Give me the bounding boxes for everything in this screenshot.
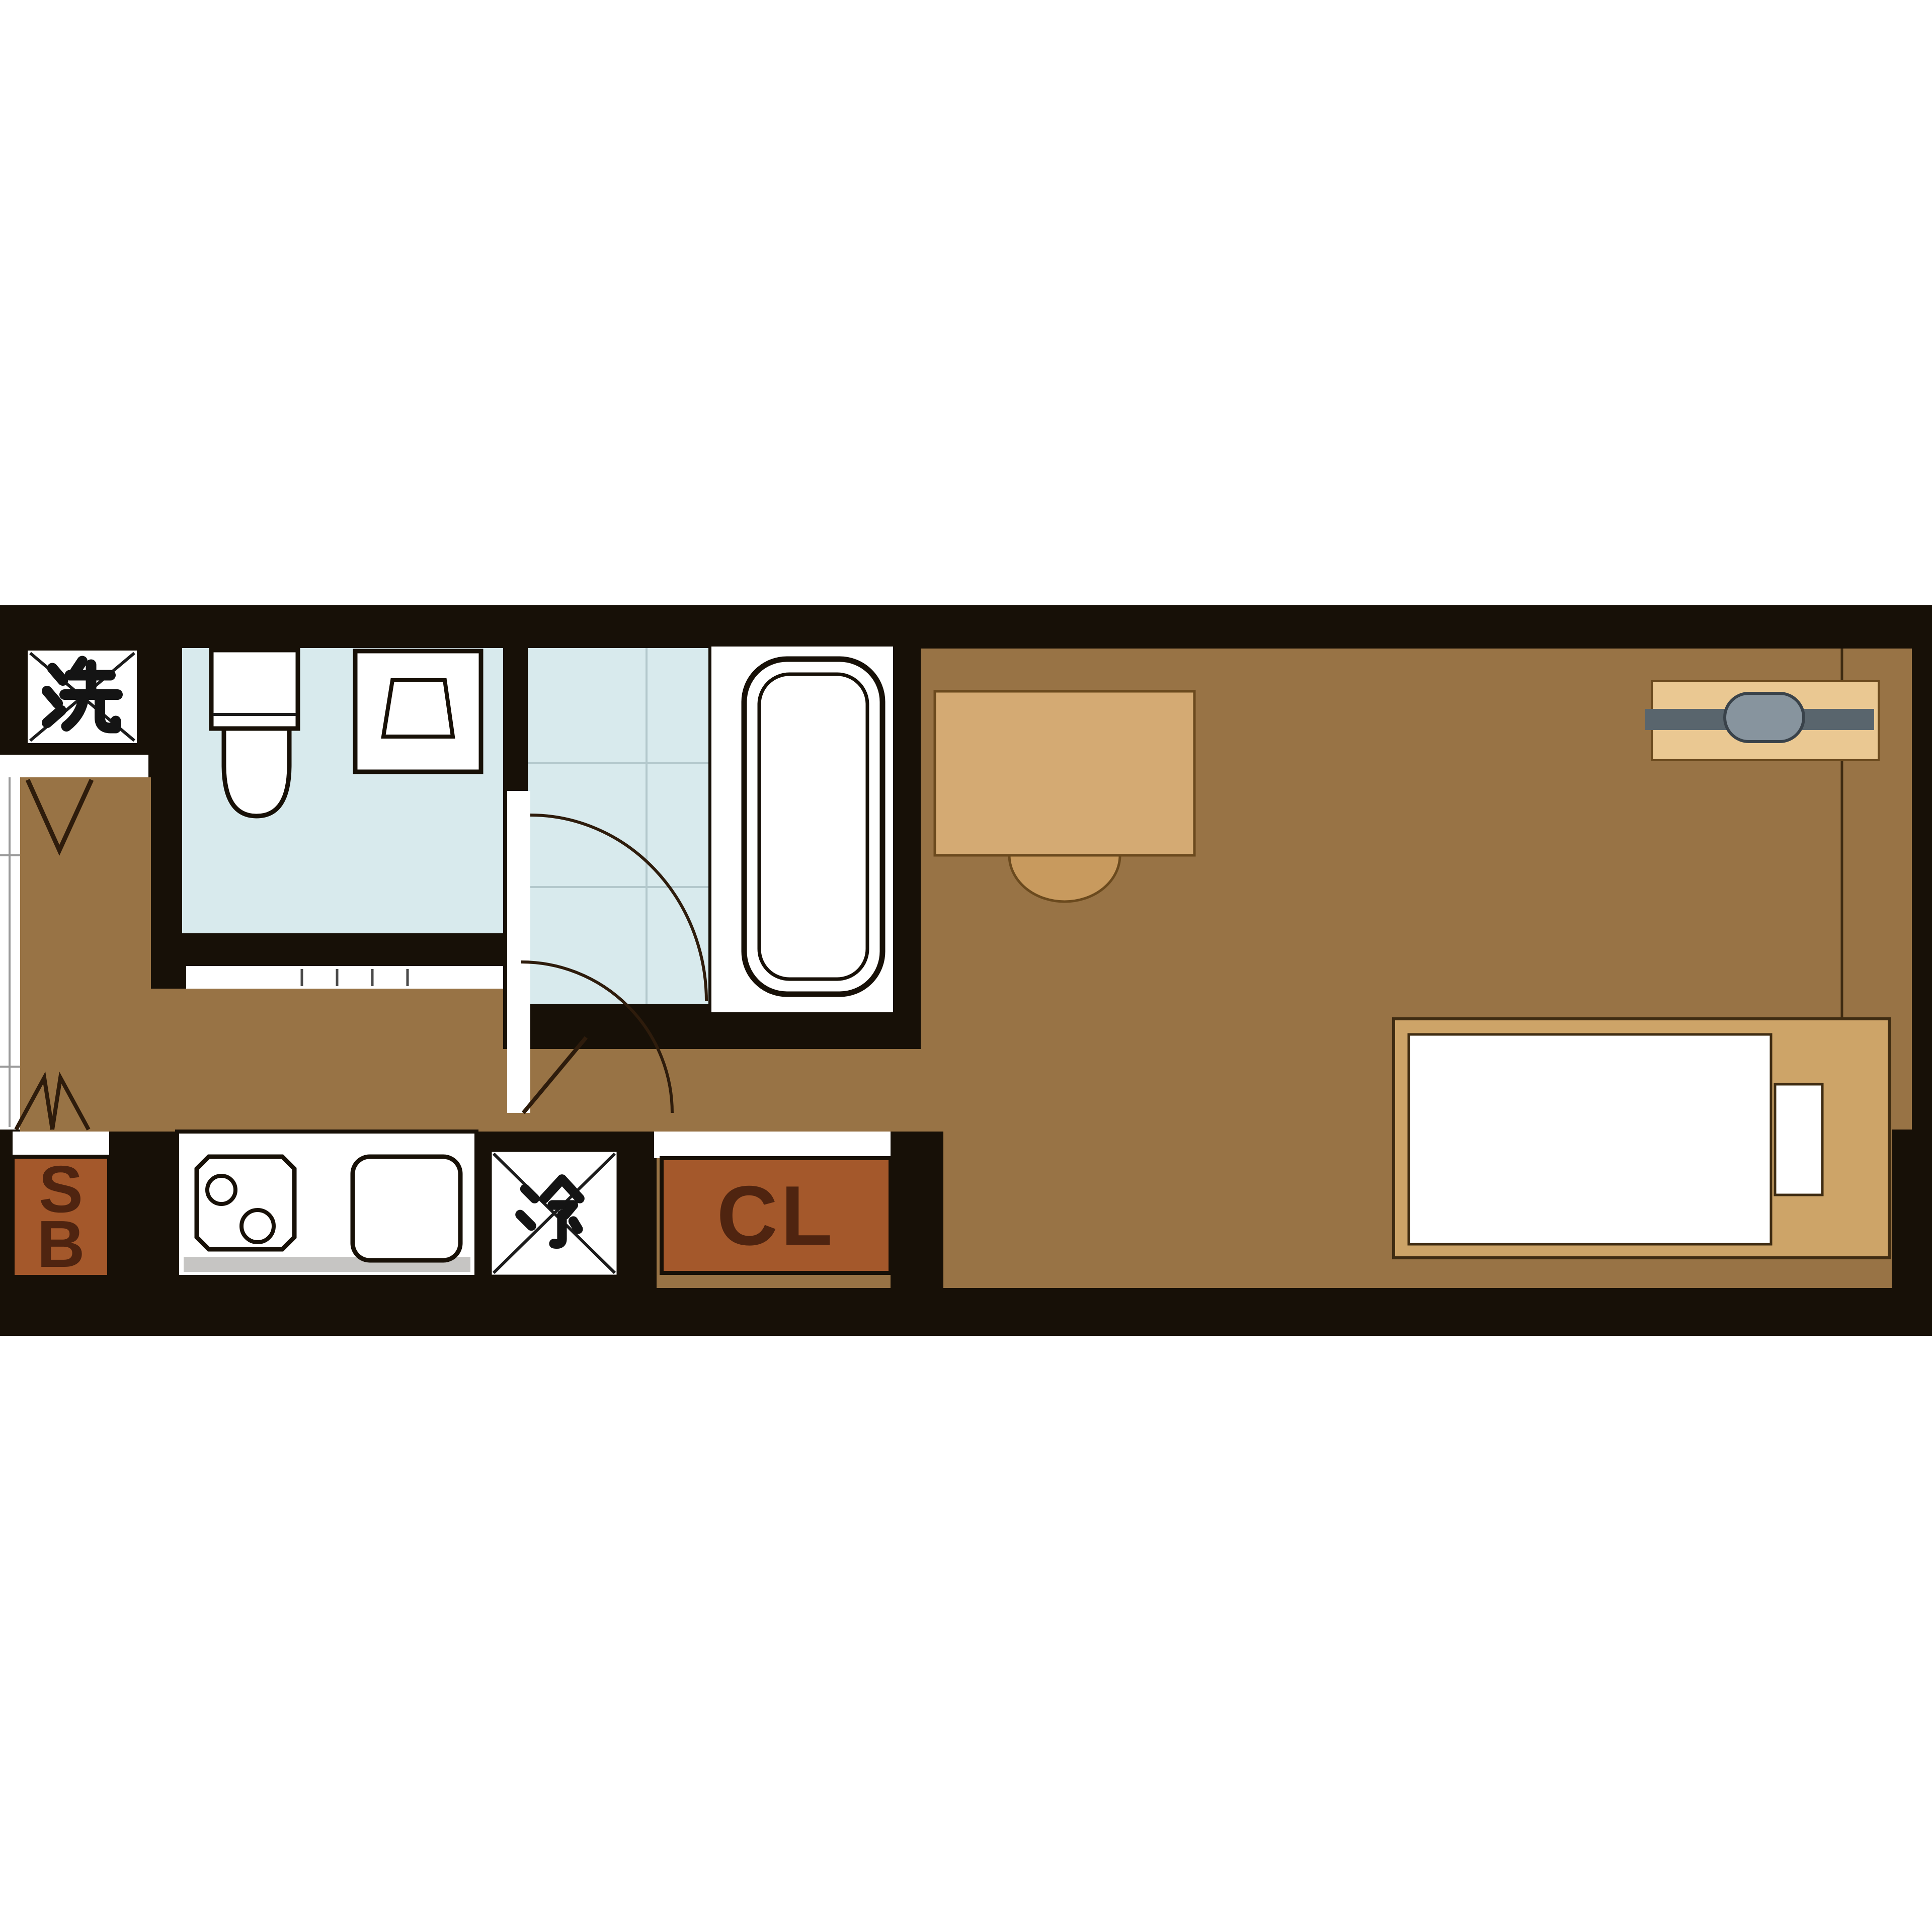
bed-pillow xyxy=(1775,1084,1822,1195)
bathtub-outer xyxy=(744,659,882,994)
shower-room-floor xyxy=(528,648,708,1004)
floor-plan-page: SB CL xyxy=(0,0,1932,1932)
bed-mattress xyxy=(1409,1034,1771,1244)
door-leaf-open xyxy=(507,791,530,1113)
bathroom-sink-box xyxy=(355,651,481,772)
closet-label: CL xyxy=(662,1158,891,1273)
hall-floor-middle xyxy=(151,989,503,1049)
toilet-tank xyxy=(211,650,298,729)
toilet-bowl xyxy=(224,729,289,816)
shoe-box-label: SB xyxy=(13,1157,109,1277)
desk xyxy=(935,691,1194,855)
floor-plan-drawing xyxy=(0,0,1932,1932)
kitchen-sink xyxy=(353,1157,460,1260)
hall-floor-left xyxy=(20,777,151,1049)
corner-pillar xyxy=(1892,1130,1932,1336)
air-conditioner-vent xyxy=(1725,693,1804,742)
washing-machine-sill xyxy=(0,755,148,777)
closet-side-wall xyxy=(891,1132,943,1336)
toilet-room-sill xyxy=(186,966,503,989)
closet-sill xyxy=(654,1132,891,1158)
